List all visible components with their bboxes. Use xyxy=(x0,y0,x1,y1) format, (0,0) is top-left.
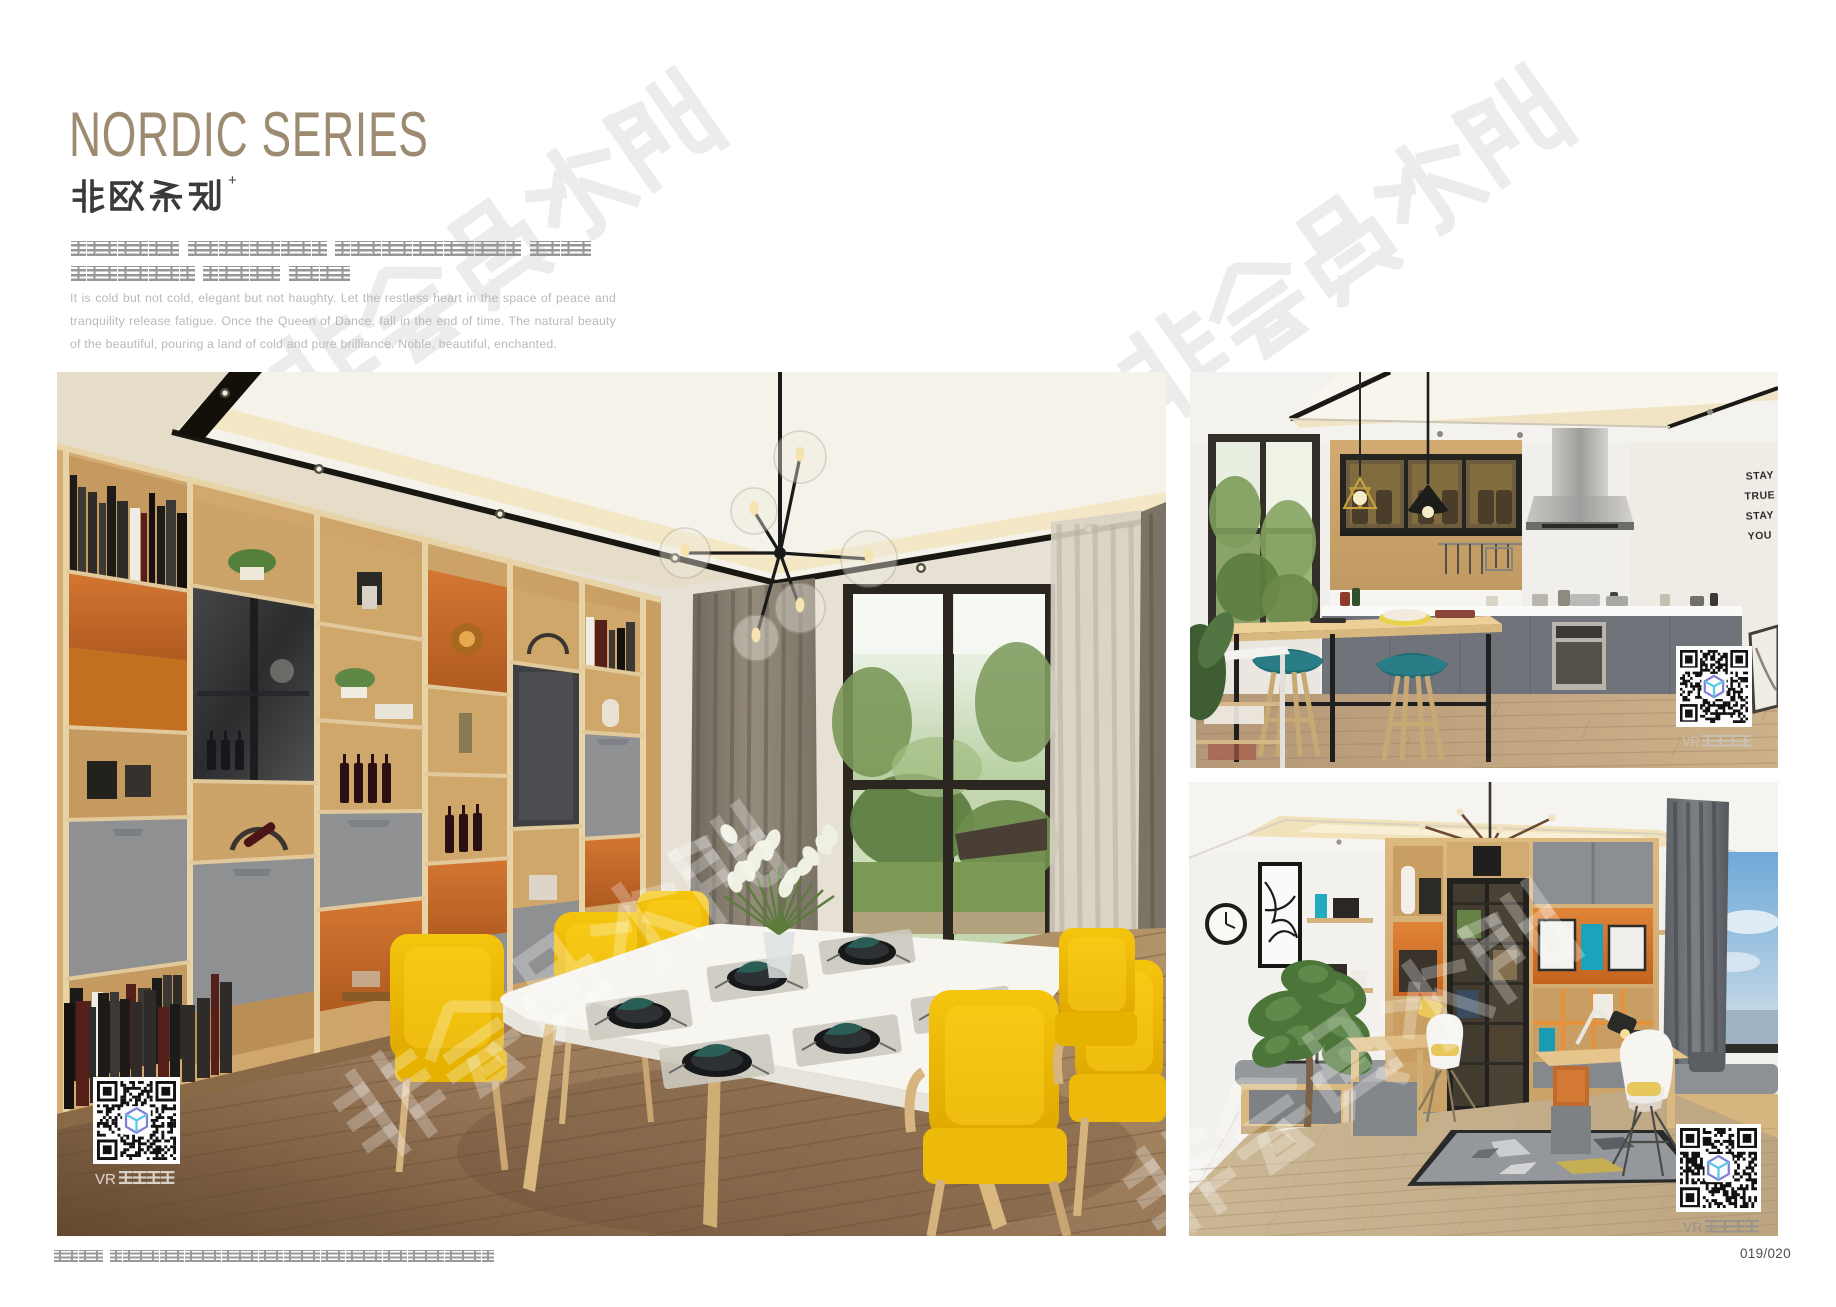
svg-text:STAY: STAY xyxy=(1745,469,1774,482)
svg-text:STAY: STAY xyxy=(1745,509,1774,522)
svg-text:TRUE: TRUE xyxy=(1744,489,1775,503)
svg-text:VR: VR xyxy=(95,1171,116,1188)
svg-text:VR: VR xyxy=(1683,1219,1702,1235)
svg-text:YOU: YOU xyxy=(1747,529,1772,542)
svg-text:VR: VR xyxy=(1682,734,1700,749)
